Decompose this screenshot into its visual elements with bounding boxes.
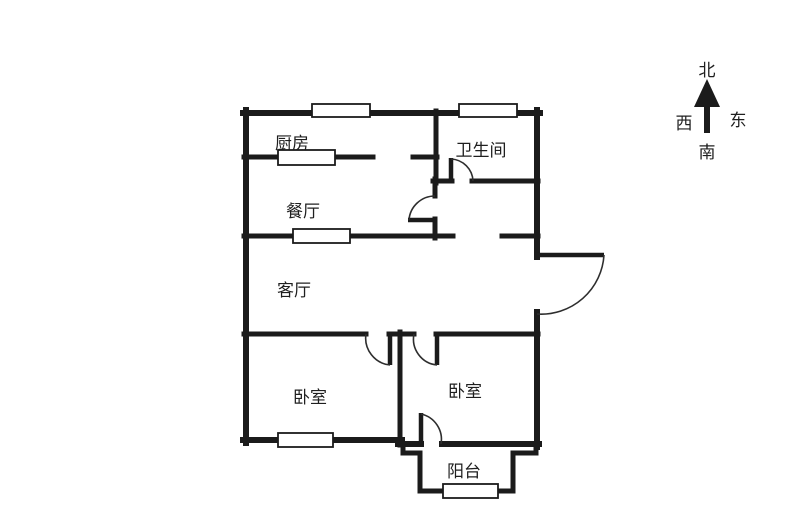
label-bathroom: 卫生间 <box>456 141 507 161</box>
compass-west: 西 <box>676 114 693 134</box>
compass-north: 北 <box>699 61 716 81</box>
label-living: 客厅 <box>277 281 311 301</box>
label-balcony: 阳台 <box>447 462 481 482</box>
window-dining-south <box>293 229 350 243</box>
label-kitchen: 厨房 <box>275 134 309 154</box>
window-balcony <box>443 484 498 498</box>
floorplan-page: 厨房 卫生间 餐厅 客厅 卧室 卧室 阳台 北 西 东 南 <box>0 0 800 511</box>
door-swing-arc <box>366 334 390 365</box>
door-balcony <box>421 413 441 444</box>
compass: 北 西 东 南 <box>676 61 747 163</box>
compass-south: 南 <box>699 143 716 163</box>
door-bathroom <box>451 158 473 181</box>
door-swing-arc <box>413 334 437 365</box>
door-bedroom-left <box>366 334 390 365</box>
door-swing-arc <box>409 196 435 220</box>
compass-east: 东 <box>730 111 747 131</box>
door-entrance <box>537 255 604 314</box>
door-swing-arc <box>537 255 604 314</box>
door-bedroom-right <box>413 334 437 365</box>
window-bedroom-left <box>278 433 333 447</box>
door-swing-arc <box>451 159 473 181</box>
window-north-bathroom <box>459 104 517 117</box>
door-swing-arc <box>421 414 441 444</box>
floorplan-canvas: 厨房 卫生间 餐厅 客厅 卧室 卧室 阳台 北 西 东 南 <box>0 0 800 511</box>
north-arrow-icon <box>694 79 720 107</box>
door-hallway <box>408 196 436 220</box>
window-north-kitchen <box>312 104 370 117</box>
label-dining: 餐厅 <box>286 202 320 222</box>
room-labels: 厨房 卫生间 餐厅 客厅 卧室 卧室 阳台 <box>275 134 507 482</box>
label-bedroom-left: 卧室 <box>293 388 327 408</box>
label-bedroom-right: 卧室 <box>448 382 482 402</box>
